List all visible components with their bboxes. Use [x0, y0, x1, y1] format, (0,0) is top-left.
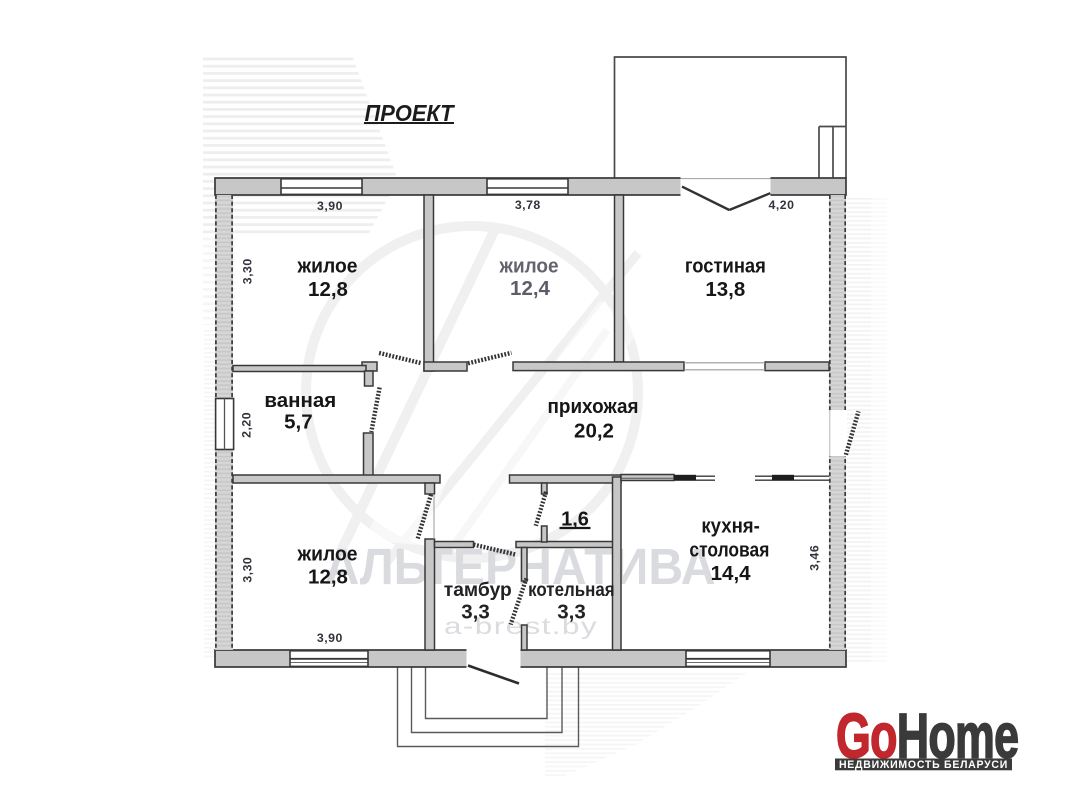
- svg-text:12,4: 12,4: [510, 277, 550, 300]
- svg-text:12,8: 12,8: [308, 566, 348, 589]
- svg-text:прихожая: прихожая: [548, 395, 639, 418]
- svg-text:3,90: 3,90: [317, 199, 343, 213]
- svg-text:14,4: 14,4: [711, 562, 751, 585]
- svg-text:котельная: котельная: [528, 579, 615, 601]
- svg-text:3,3: 3,3: [557, 600, 586, 623]
- svg-text:13,8: 13,8: [705, 278, 745, 301]
- svg-text:жилое: жилое: [297, 254, 358, 277]
- svg-text:3,46: 3,46: [807, 545, 821, 571]
- svg-text:НЕДВИЖИМОСТЬ БЕЛАРУСИ: НЕДВИЖИМОСТЬ БЕЛАРУСИ: [839, 759, 1008, 771]
- svg-text:кухня-: кухня-: [701, 515, 760, 538]
- svg-text:ПРОЕКТ: ПРОЕКТ: [365, 100, 456, 126]
- svg-text:20,2: 20,2: [574, 420, 614, 443]
- svg-text:жилое: жилое: [499, 254, 559, 277]
- svg-text:гостиная: гостиная: [685, 255, 766, 278]
- svg-text:жилое: жилое: [297, 543, 358, 566]
- svg-text:столовая: столовая: [689, 538, 769, 561]
- svg-text:4,20: 4,20: [769, 198, 795, 212]
- svg-text:тамбур: тамбур: [444, 579, 512, 601]
- svg-text:3,3: 3,3: [461, 600, 490, 623]
- svg-text:3,30: 3,30: [241, 258, 255, 284]
- svg-text:5,7: 5,7: [284, 411, 313, 434]
- svg-text:3,78: 3,78: [515, 198, 541, 212]
- svg-text:ванная: ванная: [264, 389, 336, 412]
- svg-text:2,20: 2,20: [239, 412, 253, 438]
- svg-text:3,90: 3,90: [317, 631, 343, 645]
- svg-text:12,8: 12,8: [308, 278, 348, 301]
- svg-text:3,30: 3,30: [241, 557, 255, 583]
